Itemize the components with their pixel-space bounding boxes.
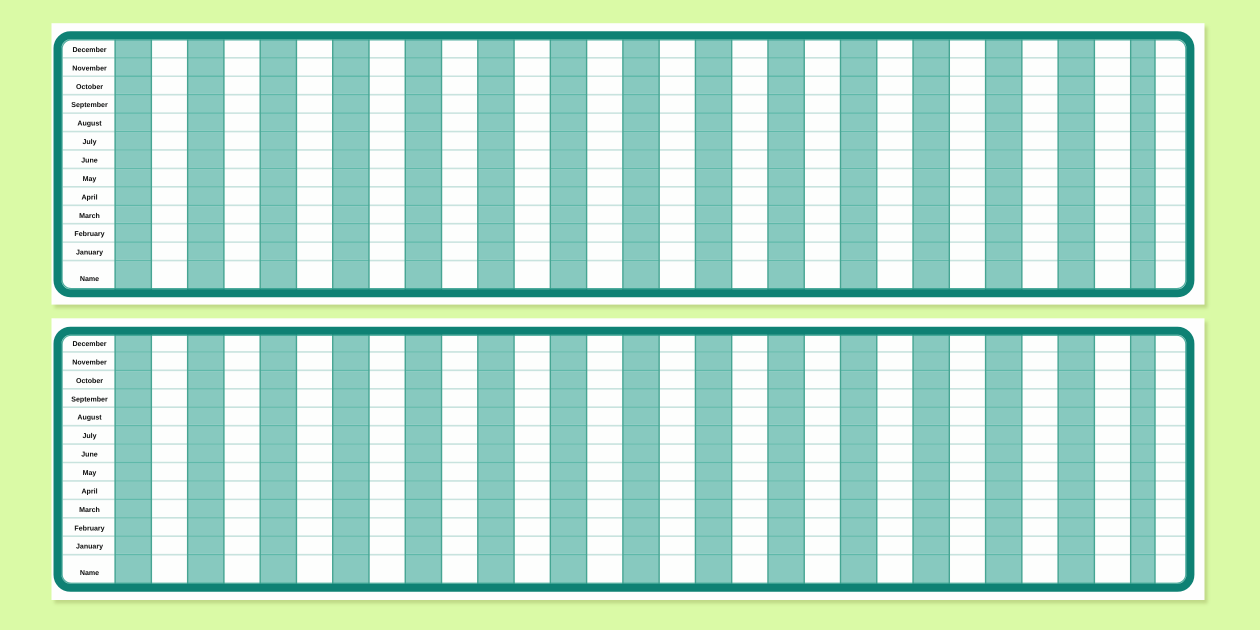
svg-text:June: June	[81, 158, 98, 165]
svg-text:December: December	[72, 46, 106, 54]
svg-text:July: July	[82, 432, 96, 440]
svg-text:February: February	[74, 230, 104, 238]
svg-text:September: September	[71, 101, 108, 109]
svg-text:January: January	[76, 250, 103, 257]
svg-text:April: April	[81, 193, 97, 201]
svg-text:August: August	[77, 121, 102, 128]
svg-text:November: November	[72, 358, 107, 366]
svg-text:Name: Name	[80, 276, 99, 283]
svg-text:December: December	[72, 340, 106, 348]
svg-text:October: October	[76, 83, 103, 91]
svg-text:April: April	[81, 487, 97, 495]
svg-text:January: January	[76, 544, 103, 551]
svg-text:July: July	[82, 138, 96, 146]
svg-text:June: June	[81, 452, 98, 459]
svg-text:August: August	[77, 415, 102, 422]
svg-text:March: March	[79, 506, 100, 514]
svg-text:May: May	[83, 176, 97, 183]
svg-text:March: March	[79, 212, 100, 220]
svg-text:November: November	[72, 64, 107, 72]
svg-text:May: May	[83, 470, 97, 477]
svg-text:September: September	[71, 395, 108, 403]
svg-text:February: February	[74, 524, 104, 532]
svg-text:October: October	[76, 377, 103, 385]
svg-text:Name: Name	[80, 570, 99, 577]
